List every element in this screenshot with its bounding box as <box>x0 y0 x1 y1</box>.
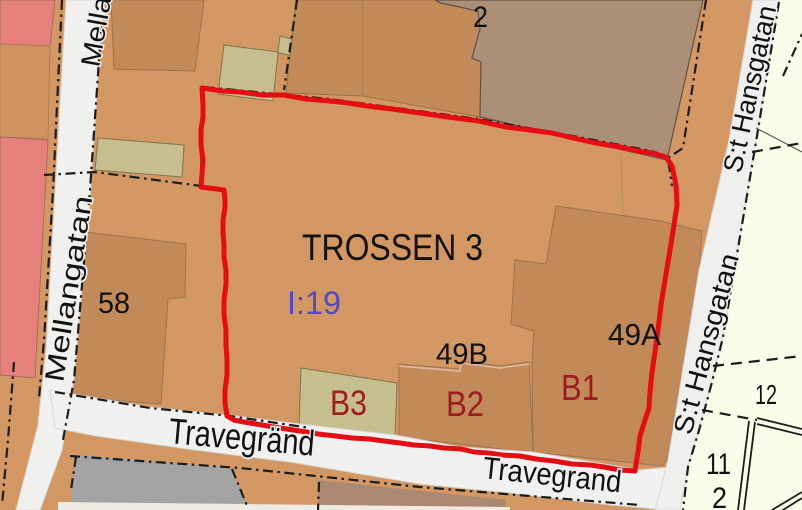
svg-text:11: 11 <box>706 448 731 481</box>
svg-text:B1: B1 <box>561 367 599 408</box>
svg-text:12: 12 <box>755 379 777 410</box>
svg-text:49A: 49A <box>608 317 661 352</box>
svg-text:TROSSEN 3: TROSSEN 3 <box>302 227 483 268</box>
svg-text:2: 2 <box>712 482 727 510</box>
svg-text:I:19: I:19 <box>287 285 341 321</box>
svg-text:58: 58 <box>98 287 130 320</box>
svg-text:B2: B2 <box>446 385 484 424</box>
svg-text:49B: 49B <box>436 338 488 371</box>
svg-text:2: 2 <box>473 1 488 34</box>
svg-text:B3: B3 <box>330 384 367 423</box>
